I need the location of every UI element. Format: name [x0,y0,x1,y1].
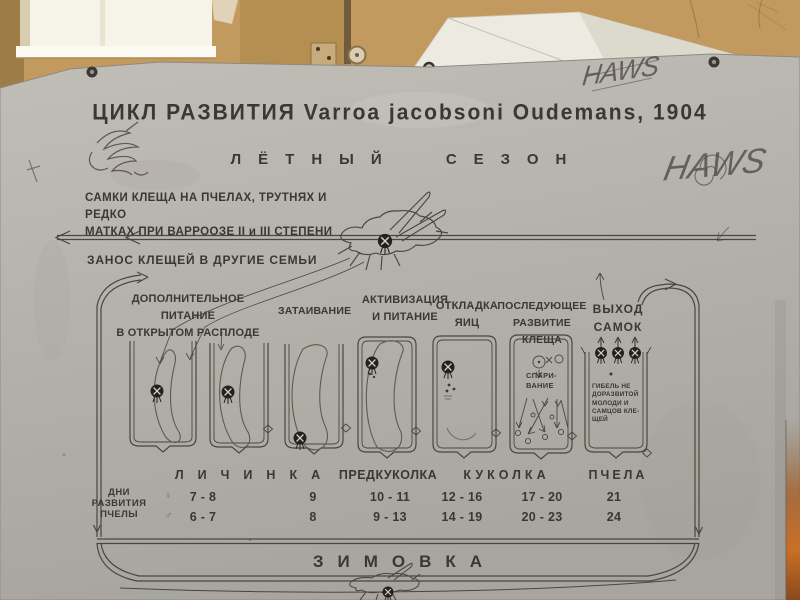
intro-line: САМКИ КЛЕЩА НА ПЧЕЛАХ, ТРУТНЯХ И РЕДКО [85,190,365,224]
poster-title: ЦИКЛ РАЗВИТИЯ Varroa jacobsoni Oudemans,… [80,99,720,127]
stage-label-feeding: ДОПОЛНИТЕЛЬНОЕ ПИТАНИЕ В ОТКРЫТОМ РАСПЛО… [103,291,273,342]
door-latch [311,43,336,66]
drone-days-adult: 24 [579,510,649,526]
death-note: ГИБЕЛЬ НЕ ДОРАЗВИТОЙ МОЛОДИ И САМЦОВ КЛЕ… [592,383,650,424]
photographed-poster-scene: ЦИКЛ РАЗВИТИЯ Varroa jacobsoni Oudemans,… [0,0,800,600]
stage-label-egg-laying: ОТКЛАДКА ЯИЦ [433,298,501,332]
mating-label: СПАРИ- ВАНИЕ [526,371,578,390]
drone-days-larva-early: 6 - 7 [168,510,238,526]
winter-heading: ЗИМОВКА [278,551,517,572]
stage-label-exit: ВЫХОД САМОК [590,300,646,336]
drone-days-pupa-early: 14 - 19 [427,510,497,526]
phase-header-larva: ЛИЧИНКА [158,468,337,484]
table-row-header: ДНИ РАЗВИТИЯ ПЧЕЛЫ [76,487,162,520]
window [16,0,216,58]
drone-days-pupa-late: 20 - 23 [507,510,577,526]
worker-days-pupa-late: 17 - 20 [507,490,577,506]
intro-text: САМКИ КЛЕЩА НА ПЧЕЛАХ, ТРУТНЯХ И РЕДКО М… [85,190,365,241]
stage-label-hiding: ЗАТАИВАНИЕ [278,303,348,320]
transfer-note: ЗАНОС КЛЕЩЕЙ В ДРУГИЕ СЕМЬИ [87,253,317,268]
phase-header-bee: ПЧЕЛА [584,468,649,484]
drone-days-larva-late: 8 [278,510,348,526]
light-gap-glow [786,420,800,600]
phase-header-pupa: КУКОЛКА [455,468,554,484]
stage-label-development: ПОСЛЕДУЮЩЕЕ РАЗВИТИЕ КЛЕЩА [496,298,588,349]
season-heading: ЛЁТНЫЙ СЕЗОН [190,151,607,170]
worker-days-pupa-early: 12 - 16 [427,490,497,506]
phase-header-prepupa: ПРЕДКУКОЛКА [338,468,438,484]
worker-days-adult: 21 [579,490,649,506]
worker-days-prepupa: 10 - 11 [355,490,425,506]
worker-days-larva-early: 7 - 8 [168,490,238,506]
worker-days-larva-late: 9 [278,490,348,506]
drone-days-prepupa: 9 - 13 [355,510,425,526]
intro-line: МАТКАХ ПРИ ВАРРООЗЕ II и III СТЕПЕНИ [85,224,365,241]
